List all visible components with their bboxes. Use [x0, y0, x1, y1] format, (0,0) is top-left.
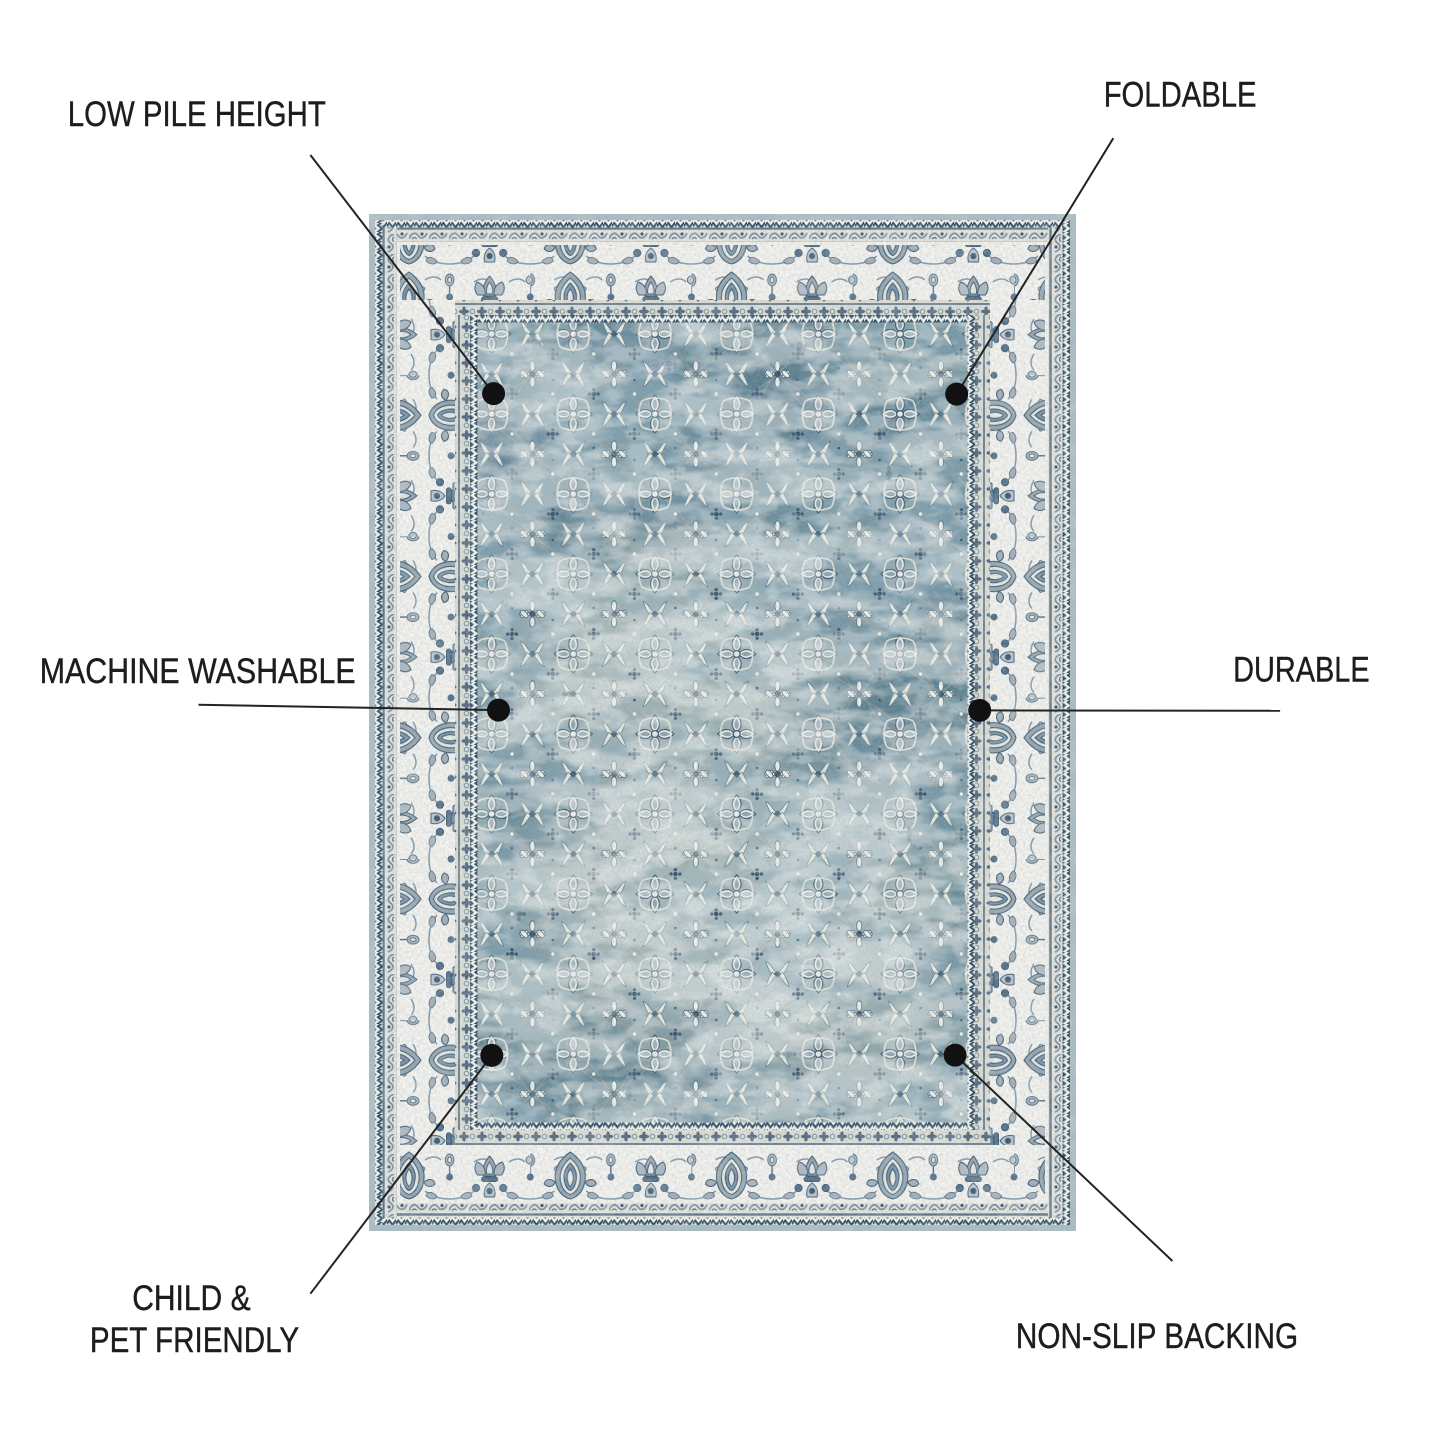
svg-text:PET FRIENDLY: PET FRIENDLY — [90, 1321, 299, 1360]
svg-text:LOW PILE HEIGHT: LOW PILE HEIGHT — [68, 95, 326, 134]
svg-text:FOLDABLE: FOLDABLE — [1104, 76, 1257, 115]
svg-text:MACHINE WASHABLE: MACHINE WASHABLE — [40, 652, 356, 691]
svg-text:NON-SLIP BACKING: NON-SLIP BACKING — [1016, 1317, 1298, 1356]
svg-text:CHILD &: CHILD & — [132, 1279, 250, 1318]
svg-text:DURABLE: DURABLE — [1233, 651, 1370, 690]
